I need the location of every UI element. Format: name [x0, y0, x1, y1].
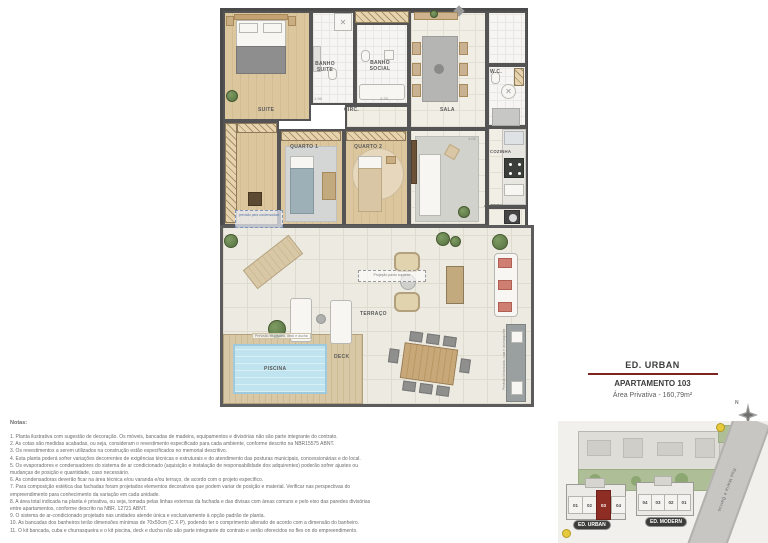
dining-chair [412, 42, 421, 55]
nightstand [386, 156, 396, 164]
note-item: 10. As bancadas dos banheiros terão dime… [10, 520, 380, 527]
plant-icon [436, 232, 450, 246]
room-label-deck: DECK [334, 354, 349, 360]
unit-cell: 04 [638, 494, 652, 511]
room-label-quarto1: QUARTO 1 [290, 144, 318, 150]
title-divider [588, 373, 718, 375]
shaft-box [492, 108, 520, 126]
note-item: 1. Planta ilustrativa com sugestão de de… [10, 434, 380, 441]
plant-icon [458, 206, 470, 218]
bed-blanket [236, 46, 286, 74]
poi-marker-icon [562, 529, 571, 538]
nightstand [288, 16, 296, 26]
shower-box: ✕ [334, 13, 352, 31]
room-label-sala: SALA [440, 107, 455, 113]
outdoor-chair [419, 383, 433, 395]
outdoor-dining-table [400, 342, 458, 385]
note-item: 11. O kit bancada, cuba e churrasqueira … [10, 528, 380, 535]
poi-marker-icon [716, 423, 725, 432]
street-name-label: Rua Maria e Barros [717, 467, 738, 512]
room-label-suite: SUITE [258, 107, 274, 113]
centerpiece [434, 64, 444, 74]
dining-chair [459, 42, 468, 55]
apartment-info: ED. URBAN APARTAMENTO 103 Área Privativa… [560, 360, 745, 399]
note-item: 9. O sistema de ar-condicionado projetad… [10, 513, 380, 520]
dresser [248, 192, 262, 206]
outdoor-chair [426, 333, 440, 345]
round-shower: ✕ [501, 84, 516, 99]
wardrobe [237, 123, 277, 133]
unit-cell: 04 [611, 496, 626, 514]
floor-plan: ✕ ✕ [218, 6, 540, 408]
notes-section: Notas: 1. Planta ilustrativa com sugestã… [10, 420, 380, 535]
plant-icon [450, 236, 461, 247]
note-item: 6. As condensadoras deverão ficar na áre… [10, 477, 380, 484]
dining-chair [412, 84, 421, 97]
tv-console [411, 140, 417, 184]
room-label-banho-social: BANHO SOCIAL [364, 60, 396, 72]
unit-cell: 01 [677, 494, 691, 511]
unit-cell-highlighted: 03 [596, 490, 611, 520]
note-item: 2. As cotas são medidas acabadas, ou sej… [10, 441, 380, 448]
note-item: 7. Para composição estética das fachadas… [10, 484, 380, 498]
outdoor-chair [459, 358, 471, 373]
dimension-label: 2.23 [380, 96, 388, 101]
building-core [654, 476, 672, 486]
room-label-quarto2: QUARTO 2 [354, 144, 382, 150]
note-item: 8. A área total indicada na planta é pri… [10, 499, 380, 513]
annotation-condensadora: previsão para condensadora [235, 210, 283, 228]
grill [511, 381, 523, 395]
fridge [504, 131, 524, 145]
room-label-piscina: PISCINA [264, 366, 286, 372]
wardrobe [281, 131, 341, 141]
note-item: 4. Esta planta poderá sofrer variações d… [10, 456, 380, 463]
private-area-label: Área Privativa - 160,79m² [560, 392, 745, 399]
dimension-label: 1.94 [314, 96, 322, 101]
room-label-banho-suite: BANHO SUITE [312, 61, 338, 73]
outdoor-dining-group [382, 326, 478, 402]
notes-title: Notas: [10, 420, 380, 426]
outdoor-chair [409, 331, 423, 343]
building-core [585, 478, 605, 488]
page: ✕ ✕ [0, 0, 768, 543]
bbq-sink [511, 331, 523, 343]
outdoor-chair [443, 336, 457, 348]
building-title: ED. URBAN [560, 360, 745, 370]
room-label-circ: CIRC. [344, 107, 359, 113]
plant-icon [430, 10, 438, 18]
closet-block [487, 11, 527, 65]
dimension-label: 1.04 [468, 136, 476, 141]
wardrobe [225, 123, 237, 223]
bed-duvet [358, 168, 382, 212]
building-badge-modern: ED. MODERN [646, 518, 686, 526]
bed-duvet [290, 168, 314, 214]
green-pouf [226, 90, 238, 102]
dining-chair [459, 63, 468, 76]
annotation-kit-piscina: Previsão kit piscina, deck e ducha [252, 333, 311, 339]
wardrobe [346, 131, 406, 141]
dining-chair [459, 84, 468, 97]
room-label-cozinha: COZINHA [490, 149, 511, 154]
annotation-projecao: Projeção pavto superior [358, 270, 426, 282]
sofa [419, 154, 441, 216]
unit-cell: 02 [582, 496, 597, 514]
nightstand [226, 16, 234, 26]
pink-cushion [498, 258, 512, 268]
side-table [316, 314, 326, 324]
kitchen-sink [504, 184, 524, 196]
sun-lounger [330, 300, 352, 344]
outdoor-chair [436, 385, 450, 397]
pillow [239, 23, 258, 33]
duct [514, 68, 524, 86]
room-label-aserv: Á. SERV. [484, 203, 504, 208]
site-plan: Rua Maria e Barros 01 02 03 04 ED. URBAN… [558, 421, 768, 543]
outdoor-chair [402, 380, 416, 392]
bbq-counter [506, 324, 526, 402]
sink [384, 50, 394, 60]
building-badge-urban: ED. URBAN [574, 521, 610, 529]
unit-cell: 01 [568, 496, 583, 514]
annotation-kit-bancada: Previsão kit bancada, cuba e churrasquei… [502, 329, 506, 390]
pink-cushion [498, 280, 512, 290]
pillow [263, 23, 282, 33]
unit-cell: 03 [651, 494, 665, 511]
apartment-title: APARTAMENTO 103 [560, 379, 745, 388]
room-label-wc: W.C. [490, 69, 502, 75]
washer [504, 210, 520, 224]
barrel-chair [394, 292, 420, 312]
plant-icon [492, 234, 508, 250]
bar-cabinet [446, 266, 464, 304]
plant-icon [224, 234, 238, 248]
unit-cell: 02 [664, 494, 678, 511]
note-item: 5. Os evaporadores e condensadores do si… [10, 463, 380, 477]
room-label-terraco: TERRAÇO [360, 311, 387, 317]
outdoor-chair [388, 348, 400, 363]
barrel-chair [394, 252, 420, 272]
dining-chair [412, 63, 421, 76]
shaft [355, 11, 409, 23]
note-item: 3. Os revestimentos a serem utilizados n… [10, 448, 380, 455]
stove [504, 158, 524, 178]
desk [322, 172, 336, 200]
pink-cushion [498, 302, 512, 312]
